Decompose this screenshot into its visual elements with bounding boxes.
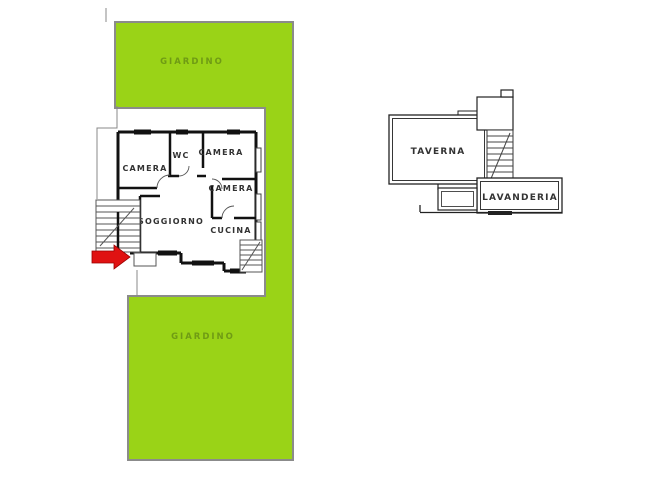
room-soggiorno-label: SOGGIORNO <box>138 217 204 226</box>
basement-plan: TAVERNA LAVANDERIA <box>389 90 562 213</box>
room-wc-label: WC <box>172 151 189 160</box>
garden-top-label: GIARDINO <box>160 57 224 67</box>
floor-plan-image: GIARDINO GIARDINO <box>0 0 651 500</box>
basement-protrusion <box>477 90 513 130</box>
room-taverna-label: TAVERNA <box>411 147 466 157</box>
room-camera-3: CAMERA <box>208 180 255 217</box>
garden-bottom-label: GIARDINO <box>171 332 235 342</box>
room-cucina-label: CUCINA <box>210 226 251 235</box>
room-camera-1-label: CAMERA <box>122 164 167 173</box>
room-camera-2-label: CAMERA <box>198 148 243 157</box>
room-soggiorno: SOGGIORNO <box>138 197 211 252</box>
room-camera-1: CAMERA <box>119 133 169 187</box>
room-lavanderia-label: LAVANDERIA <box>482 193 558 203</box>
floor-plan-svg: GIARDINO GIARDINO <box>0 0 651 500</box>
side-windows <box>256 148 261 242</box>
room-camera-3-label: CAMERA <box>208 184 253 193</box>
staircase-main <box>96 200 140 252</box>
entrance-porch <box>134 253 156 266</box>
staircase-basement <box>487 130 513 185</box>
room-lavanderia: LAVANDERIA <box>477 178 562 213</box>
room-camera-1-area <box>119 133 169 187</box>
main-floor-plan: CAMERA WC CAMERA CAMERA SOGGIORNO <box>92 132 262 272</box>
staircase-secondary <box>240 240 262 272</box>
room-camera-2: CAMERA <box>198 133 255 178</box>
room-taverna: TAVERNA <box>389 111 488 184</box>
basement-bay <box>438 184 477 210</box>
room-wc: WC <box>171 133 202 175</box>
